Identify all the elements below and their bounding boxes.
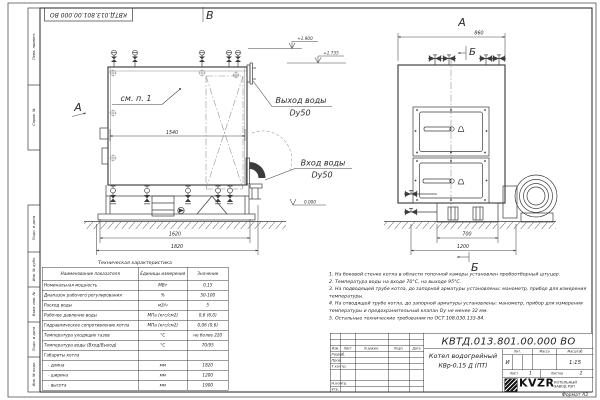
see-note-label: см. п. 1 — [121, 94, 152, 103]
view-arrow-a-label: А — [73, 101, 82, 114]
param-name: - ширина — [42, 370, 138, 380]
note-line: 3. На подводящей трубе котла, до запорно… — [329, 286, 599, 301]
side-base — [437, 203, 498, 222]
dim-1620: 1620 — [169, 232, 181, 238]
title-block: Изм. Лист N докум. Подп. Дата Разраб. Пр… — [330, 333, 593, 392]
tech-table: Техническая характеристика Наименование … — [42, 260, 228, 391]
dim-1820: 1820 — [171, 244, 183, 250]
param-name: Рабочее давление воды — [42, 310, 138, 320]
frame-label-vzam: Взам. инв. № — [32, 292, 36, 317]
elevation-1735: +1.735 — [287, 51, 346, 64]
svg-text:0.000: 0.000 — [304, 200, 316, 205]
param-units: мм — [138, 370, 187, 380]
technical-notes: 1. На боковой стенке котла в области топ… — [329, 271, 599, 322]
tech-table-row: Расход воды м3/ч 5 — [42, 300, 228, 310]
note-line: 5. Остальные технические требования по О… — [329, 315, 599, 322]
tech-table-row: - высота мм 1900 — [42, 380, 228, 390]
param-value: 0,6 (6,0) — [187, 310, 228, 320]
param-name: Расход воды — [42, 300, 138, 310]
door-handle — [424, 127, 451, 131]
side-top-valve-icons — [428, 55, 506, 65]
dim-700: 700 — [462, 232, 471, 238]
param-name: Температура уходящих газов — [42, 330, 138, 340]
param-value — [187, 350, 228, 360]
param-units — [138, 350, 187, 360]
tech-table-row: Гидравлическое сопротивление котла МПа (… — [42, 320, 228, 330]
door-lock-icon — [458, 179, 464, 184]
tech-table-row: Номинальная мощность МВт 0,15 — [42, 280, 228, 290]
company-logo: KVZR — [519, 377, 554, 390]
param-name: - высота — [42, 380, 138, 390]
side-view-label: А — [457, 16, 466, 29]
sig-tkontr: Т.контр. — [331, 364, 356, 370]
boiler-side-view — [384, 55, 557, 229]
param-units: °С — [138, 330, 187, 340]
water-inlet-elbow — [246, 131, 292, 199]
param-units: МПа (кгс/см2) — [138, 320, 187, 330]
param-value: 1820 — [187, 360, 228, 370]
param-name: Номинальная мощность — [42, 280, 138, 290]
param-name: Гидравлическое сопротивление котла — [42, 320, 138, 330]
param-value: 0,15 — [187, 280, 228, 290]
sig-utv: Утв. — [331, 387, 356, 393]
door-handle — [423, 179, 451, 183]
elevation-1900: +1.900 — [248, 36, 318, 49]
corner-doc-number: КВТД.013.801.00.000 ВО — [50, 11, 127, 18]
door-lock-icon — [458, 127, 464, 132]
tech-table-row: - длина мм 1820 — [42, 360, 228, 370]
param-value: 5 — [187, 300, 228, 310]
frame-label-podp2: Подп. и дата — [32, 327, 36, 351]
tech-table-row: Габариты котла — [42, 350, 228, 360]
dim-1200: 1200 — [457, 244, 469, 250]
param-value: 50-100 — [187, 290, 228, 300]
frame-label-perv: Перв. примен. — [32, 33, 36, 60]
company-name-line2: ЗАВОД РЭП — [554, 385, 577, 389]
param-units: мм — [138, 360, 187, 370]
company-name: КОТЕЛЬНЫЙ ЗАВОД РЭП — [554, 381, 577, 389]
tech-table-row: Температура уходящих газов °С не более 2… — [42, 330, 228, 340]
param-name: Температура воды (Вход/Выход) — [42, 340, 138, 350]
top-valve-icons — [111, 50, 241, 67]
flue-duct-phantom — [206, 76, 243, 189]
col-name: Наименование показателя — [42, 267, 138, 280]
param-name: Диапазон рабочего регулирования — [42, 290, 138, 300]
note-line: 2. Температура воды на входе 70°С, на вы… — [329, 278, 599, 285]
svg-text:+1.900: +1.900 — [297, 36, 313, 41]
inlet-size-label: Dy50 — [311, 171, 332, 180]
scale-value: 1:15 — [557, 355, 594, 370]
col-ndokum: N докум. — [355, 346, 388, 352]
frame-label-inv-podl: Инв. № подл. — [32, 362, 36, 387]
outlet-size-label: Dy50 — [289, 109, 310, 118]
view-labels: В А см. п. 1 Выход воды Dy50 Вход воды D… — [72, 7, 479, 274]
doc-number: КВТД.013.801.00.000 ВО — [424, 334, 594, 349]
tech-table-header: Наименование показателя Единицы измерени… — [42, 267, 228, 280]
param-units: мм — [138, 380, 187, 390]
dim-860: 860 — [474, 31, 483, 37]
inlet-label: Вход воды — [301, 159, 346, 168]
param-value: 0,06 (0,6) — [187, 320, 228, 330]
param-name: Габариты котла — [42, 350, 138, 360]
param-value: 1900 — [187, 380, 228, 390]
col-data: Дата — [410, 346, 424, 352]
param-units: % — [138, 290, 187, 300]
note-line: 1. На боковой стенке котла в области топ… — [329, 271, 599, 278]
param-units: °С — [138, 340, 187, 350]
col-podp: Подп. — [388, 346, 410, 352]
boiler-front-view — [84, 50, 292, 229]
frame-label-inv-dubl: Инв. № дубл. — [32, 257, 36, 282]
front-view-label: В — [206, 9, 214, 22]
tech-table-row: - ширина мм 1200 — [42, 370, 228, 380]
company-emblem-icon — [505, 379, 518, 392]
col-units: Единицы измерения — [138, 267, 187, 280]
param-name: - длина — [42, 360, 138, 370]
drawing-sheet: Перв. примен. Справ. № Подп. и дата Инв.… — [0, 0, 600, 400]
dim-1540: 1540 — [166, 130, 178, 136]
tech-table-title: Техническая характеристика — [42, 260, 228, 266]
format-label: Формат А3 — [562, 392, 588, 398]
param-units: МПа (кгс/см2) — [138, 310, 187, 320]
param-value: 70/95 — [187, 340, 228, 350]
product-code: КВр-0,15 Д (ПТ) — [424, 361, 503, 371]
frame-label-sprav: Справ. № — [32, 108, 36, 126]
col-value: Значение — [187, 267, 228, 280]
elevation-0000: 0.000 — [290, 199, 326, 205]
param-value: 1200 — [187, 370, 228, 380]
tech-table-row: Температура воды (Вход/Выход) °С 70/95 — [42, 340, 228, 350]
param-units: МВт — [138, 280, 187, 290]
section-b-top-label: Б — [469, 47, 476, 58]
mass-label: Масса — [533, 349, 557, 355]
frame-label-podp1: Подп. и дата — [32, 216, 36, 240]
water-outlet-flange — [247, 63, 256, 84]
outlet-label: Выход воды — [276, 96, 327, 105]
param-units: м3/ч — [138, 300, 187, 310]
tech-table-row: Диапазон рабочего регулирования % 50-100 — [42, 290, 228, 300]
fan-icon — [503, 175, 557, 222]
lit-value: И — [503, 355, 513, 370]
tech-table-row: Рабочее давление воды МПа (кгс/см2) 0,6 … — [42, 310, 228, 320]
param-value: не более 220 — [187, 330, 228, 340]
sheets-value: 2 — [574, 370, 589, 378]
drain-valve-icons — [110, 186, 233, 204]
note-line: 4. На отводящей трубе котла, до запорной… — [329, 300, 599, 315]
svg-text:+1.735: +1.735 — [323, 51, 339, 56]
